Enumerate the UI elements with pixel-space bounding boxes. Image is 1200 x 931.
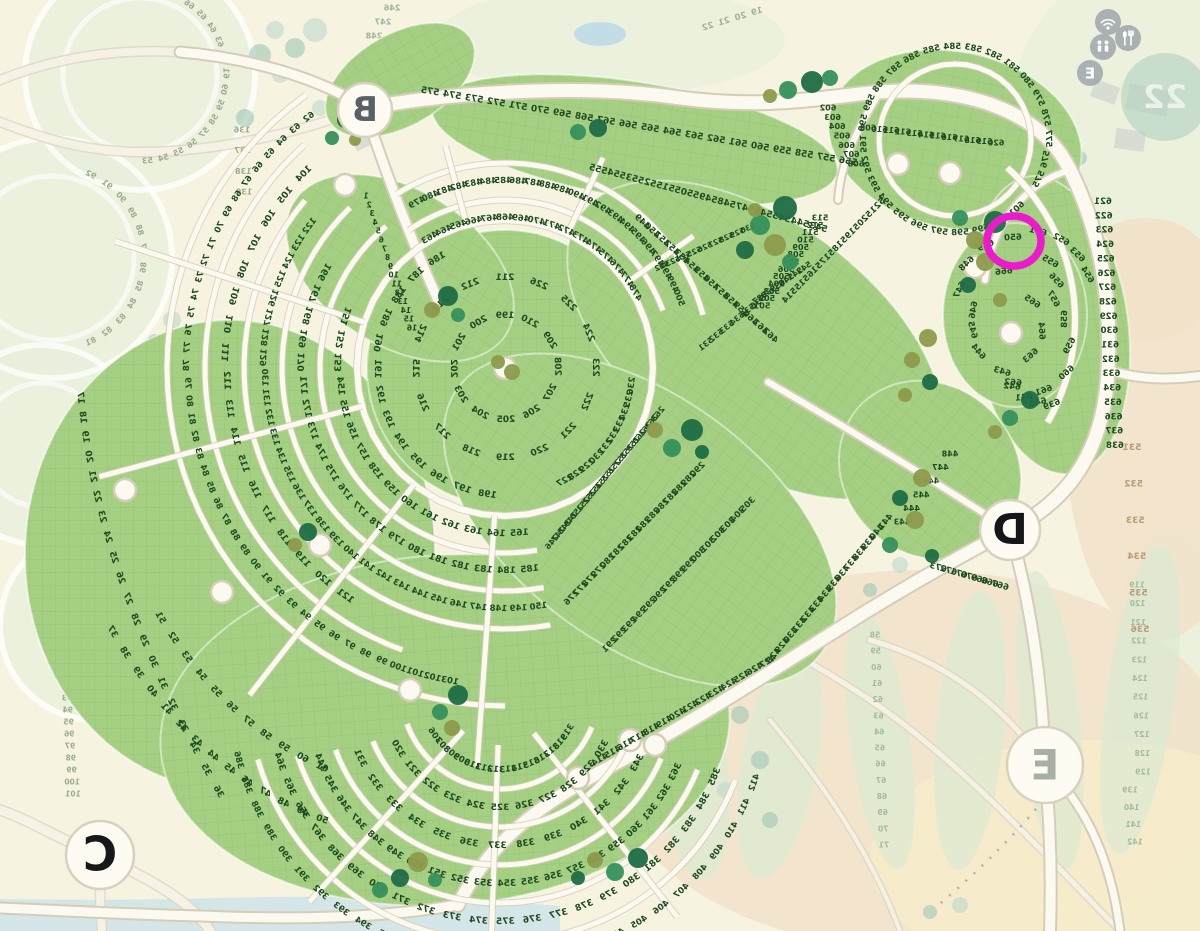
plot-label: 337 <box>488 841 507 851</box>
plot-label: 205 <box>497 415 516 425</box>
plot-label: 170 <box>297 352 308 371</box>
plot-label: 119 <box>1129 581 1145 590</box>
plot-label: 111 <box>221 343 232 362</box>
plot-label: 18 <box>76 411 87 425</box>
plot-label: 624 <box>1096 240 1114 250</box>
tree-icon <box>448 685 468 705</box>
plot-label: 142 <box>1127 838 1143 847</box>
plot-label: 60 <box>871 663 881 672</box>
tree-icon <box>966 231 984 249</box>
plot-label: 17 <box>74 391 85 404</box>
plot-label: 6 <box>379 236 384 245</box>
plot-label: 447 <box>932 463 949 472</box>
plot-label: 71 <box>879 841 889 850</box>
plot-label: 606 <box>838 141 855 150</box>
plot-label: 12 <box>394 288 404 297</box>
plot-label: 10 <box>388 271 398 280</box>
plot-label: 3 <box>369 209 374 218</box>
plot-label: 141 <box>1125 820 1141 829</box>
plot-label: 247 <box>375 18 392 27</box>
plot-label: 112 <box>221 371 232 390</box>
tree-icon <box>898 388 912 402</box>
plot-label: 448 <box>941 450 958 459</box>
zone-marker-c: C <box>66 821 134 889</box>
plot-label: 164 <box>486 528 505 539</box>
plot-label: 99 <box>66 766 76 775</box>
plot-label: 153 <box>334 353 345 372</box>
tree-icon <box>438 286 458 306</box>
plot-label: 9 <box>388 262 393 271</box>
tree-icon <box>779 81 797 99</box>
tree-icon <box>731 706 749 724</box>
plot-label: 637 <box>1105 427 1123 437</box>
tree-icon <box>773 196 797 220</box>
plot-label: 627 <box>1098 283 1116 293</box>
tree-icon <box>424 302 440 318</box>
plot-label: 67 <box>876 776 886 785</box>
tree-icon <box>762 812 778 828</box>
plot-label: 61 <box>221 67 230 79</box>
tree-icon <box>863 583 877 597</box>
tree-icon <box>925 549 939 563</box>
landmark-22-label: 22 <box>1143 78 1188 116</box>
tree-icon <box>1002 410 1018 426</box>
plot-label: 53 <box>142 156 154 166</box>
tree-icon <box>736 241 754 259</box>
plot-label: 59 <box>870 647 880 656</box>
plot-label: 129 <box>259 348 270 366</box>
tree-icon <box>748 203 762 217</box>
plot-label: 14 <box>401 306 411 315</box>
plot-label: 532 <box>1124 479 1143 489</box>
tree-icon <box>647 422 663 438</box>
plot-label: 121 <box>1130 618 1146 627</box>
plot-label: 63 <box>873 711 883 720</box>
tree-icon <box>236 109 254 127</box>
plot-label: 70 <box>878 824 888 833</box>
plot-label: 634 <box>1103 384 1121 394</box>
tree-icon <box>303 18 327 42</box>
cul-de-sac <box>887 153 909 175</box>
plot-label: 148 <box>489 604 507 614</box>
plot-label: 620 <box>987 139 1004 148</box>
tree-icon <box>299 523 317 541</box>
plot-label: 607 <box>843 150 860 159</box>
tree-icon <box>288 538 302 552</box>
plot-label: 60 <box>219 83 230 96</box>
plot-label: 64 <box>874 727 884 736</box>
tree-icon <box>428 873 442 887</box>
cul-de-sac <box>399 679 421 701</box>
tree-icon <box>892 490 908 506</box>
plot-label: 15 <box>404 315 414 324</box>
plot-label: 375 <box>496 917 515 927</box>
plot-label: 534 <box>1127 552 1146 562</box>
plot-label: 98 <box>65 754 75 763</box>
dining-icon <box>1115 25 1141 51</box>
plot-label: 7 <box>382 244 387 253</box>
plot-label: 100 <box>64 778 80 787</box>
plot-label: 120 <box>1130 599 1146 608</box>
plot-label: 621 <box>1094 197 1112 207</box>
plot-label: 68 <box>877 792 887 801</box>
plot-label: 635 <box>1104 398 1122 408</box>
zone-b-label: B <box>352 90 378 130</box>
plot-label: 199 <box>496 311 515 321</box>
plot-label: 208 <box>552 357 563 376</box>
plot-label: 66 <box>875 760 885 769</box>
plot-label: 638 <box>1106 441 1124 451</box>
plot-label: 75 <box>186 305 198 318</box>
tree-icon <box>952 210 968 226</box>
cul-de-sac <box>1000 322 1022 344</box>
plot-label: 664 <box>1035 322 1046 340</box>
tree-icon <box>432 704 448 720</box>
plot-label: 171 <box>297 376 309 396</box>
tree-icon <box>952 897 968 913</box>
plot-label: 130 <box>259 368 270 386</box>
plot-label: 215 <box>410 359 420 378</box>
plot-label: 628 <box>1099 298 1117 308</box>
cul-de-sac <box>939 162 961 184</box>
tree-icon <box>751 751 769 769</box>
plot-label: 96 <box>64 730 74 739</box>
tree-icon <box>266 21 284 39</box>
plot-label: 626 <box>1098 269 1116 279</box>
plot-label: 622 <box>1095 211 1113 221</box>
plot-label: 79 <box>182 377 193 389</box>
plot-label: 246 <box>383 4 400 13</box>
plot-label: 531 <box>1123 443 1142 453</box>
plot-label: 122 <box>1131 637 1147 646</box>
tree-icon <box>589 119 607 137</box>
svg-text:E: E <box>1085 65 1095 83</box>
plot-label: 608 <box>847 160 864 169</box>
tree-icon <box>882 537 898 553</box>
plot-label: 149 <box>509 603 527 614</box>
plot-label: 80 <box>183 395 194 408</box>
plot-label: 650 <box>1004 232 1022 243</box>
map-canvas[interactable]: 5354555657585960616263646566818283848586… <box>0 0 1200 931</box>
tree-icon <box>606 863 624 881</box>
plot-label: 139 <box>1122 786 1138 795</box>
tree-icon <box>1021 391 1039 409</box>
tree-icon <box>923 905 937 919</box>
plot-label: 629 <box>1100 312 1118 322</box>
tree-icon <box>904 352 920 368</box>
plot-label: 223 <box>590 358 600 377</box>
tree-icon <box>695 445 709 459</box>
map-viewport[interactable]: 5354555657585960616263646566818283848586… <box>0 0 1200 931</box>
plot-label: 128 <box>1135 749 1151 758</box>
plot-label: 467 <box>480 213 499 225</box>
plot-label: 631 <box>1101 341 1119 351</box>
plot-label: 69 <box>877 808 887 817</box>
plot-label: 86 <box>138 261 148 273</box>
plot-label: 94 <box>62 706 72 715</box>
plot-label: 19 <box>79 430 91 444</box>
plot-label: 577 <box>1043 129 1053 147</box>
plot-label: 8 <box>385 253 390 262</box>
tree-icon <box>571 871 585 885</box>
plot-label: 78 <box>182 359 192 371</box>
plot-label: 642 <box>1003 381 1022 393</box>
plot-label: 584 <box>943 42 961 53</box>
tree-icon <box>451 308 465 322</box>
tree-icon <box>570 124 586 140</box>
plot-label: 636 <box>1105 412 1123 422</box>
plot-label: 219 <box>496 453 515 463</box>
tree-icon <box>372 882 388 898</box>
plot-label: 211 <box>496 273 515 283</box>
plot-label: 5 <box>376 227 381 236</box>
tree-icon <box>892 557 908 573</box>
plot-label: 147 <box>469 602 488 614</box>
zone-e-label: E <box>1031 741 1060 790</box>
plot-label: 123 <box>1132 655 1148 664</box>
tree-icon <box>587 852 603 868</box>
plot-label: 2 <box>366 200 371 209</box>
tree-icon <box>391 869 409 887</box>
plot-label: 58 <box>870 631 880 640</box>
plot-label: 76 <box>184 323 195 336</box>
tree-icon <box>782 254 798 270</box>
tree-icon <box>750 215 770 235</box>
plot-label: 97 <box>65 742 75 751</box>
plot-label: 77 <box>182 341 193 354</box>
plot-label: 625 <box>1097 254 1115 264</box>
plot-label: 81 <box>185 412 197 425</box>
plot-label: 154 <box>334 376 346 396</box>
plot-label: 136 <box>233 126 250 135</box>
plot-label: 633 <box>1103 369 1121 379</box>
plot-label: 604 <box>829 122 846 131</box>
plot-label: 101 <box>65 790 81 799</box>
plot-label: 61 <box>872 679 882 688</box>
plot-label: 602 <box>820 104 837 113</box>
plot-label: 129 <box>1135 768 1151 777</box>
tree-icon <box>325 131 339 145</box>
plot-label: 184 <box>497 566 516 576</box>
zone-e-badge: E <box>1077 60 1103 86</box>
zone-marker-e: E <box>1007 727 1083 803</box>
plot-label: 445 <box>912 490 929 499</box>
plot-label: 124 <box>1132 674 1148 683</box>
plot-label: 4 <box>373 218 378 227</box>
plot-label: 353 <box>473 877 493 889</box>
tree-icon <box>822 70 838 86</box>
plot-label: 11 <box>391 280 401 289</box>
tree-icon <box>993 293 1007 307</box>
plot-label: 325 <box>491 803 510 813</box>
tree-icon <box>988 425 1002 439</box>
plot-label: 605 <box>833 132 850 141</box>
tree-icon <box>913 469 931 487</box>
tree-icon <box>628 848 648 868</box>
plot-label: 125 <box>1133 693 1149 702</box>
plot-label: 632 <box>1102 355 1120 365</box>
cul-de-sac <box>114 479 136 501</box>
plot-label: 165 <box>510 528 530 540</box>
tree-icon <box>960 277 976 293</box>
plot-label: 191 <box>372 359 382 378</box>
plot-label: 16 <box>407 324 417 333</box>
plot-label: 1 <box>363 192 368 201</box>
plot-label: 533 <box>1126 516 1145 526</box>
plot-label: 658 <box>1060 310 1070 328</box>
plot-label: 95 <box>63 718 73 727</box>
plot-label: 62 <box>873 695 883 704</box>
plot-label: 140 <box>1124 803 1140 812</box>
tree-icon <box>922 374 938 390</box>
tree-icon <box>663 439 681 457</box>
plot-label: 603 <box>824 113 841 122</box>
plot-label: 127 <box>1134 730 1150 739</box>
tree-icon <box>919 329 937 347</box>
tree-icon <box>764 234 786 256</box>
tree-icon <box>763 89 777 103</box>
tree-icon <box>801 71 823 93</box>
plot-label: 623 <box>1095 226 1113 236</box>
tree-icon <box>491 355 505 369</box>
plot-label: 126 <box>1133 711 1149 720</box>
tree-icon <box>681 419 703 441</box>
zone-marker-b: B <box>338 83 392 137</box>
tree-icon <box>444 720 460 736</box>
plot-label: 183 <box>473 564 493 576</box>
zone-marker-d: D <box>980 500 1040 560</box>
plot-label: 374 <box>469 915 489 927</box>
cul-de-sac <box>334 174 356 196</box>
plot-label: 13 <box>398 297 408 306</box>
tree-icon <box>504 364 520 380</box>
plot-label: 468 <box>496 213 514 223</box>
zone-c-label: C <box>83 828 118 883</box>
tree-icon <box>285 38 305 58</box>
plot-label: 630 <box>1100 326 1118 336</box>
cul-de-sac <box>211 581 233 603</box>
tree-icon <box>906 511 924 529</box>
plot-label: 598 <box>951 227 969 238</box>
plot-label: 202 <box>448 359 458 378</box>
zone-d-label: D <box>992 505 1028 555</box>
plot-label: 65 <box>875 744 885 753</box>
restroom-icon <box>1090 34 1116 60</box>
plot-label: 354 <box>497 879 516 890</box>
tree-icon <box>408 852 428 872</box>
plot-label: 535 <box>1129 589 1148 599</box>
